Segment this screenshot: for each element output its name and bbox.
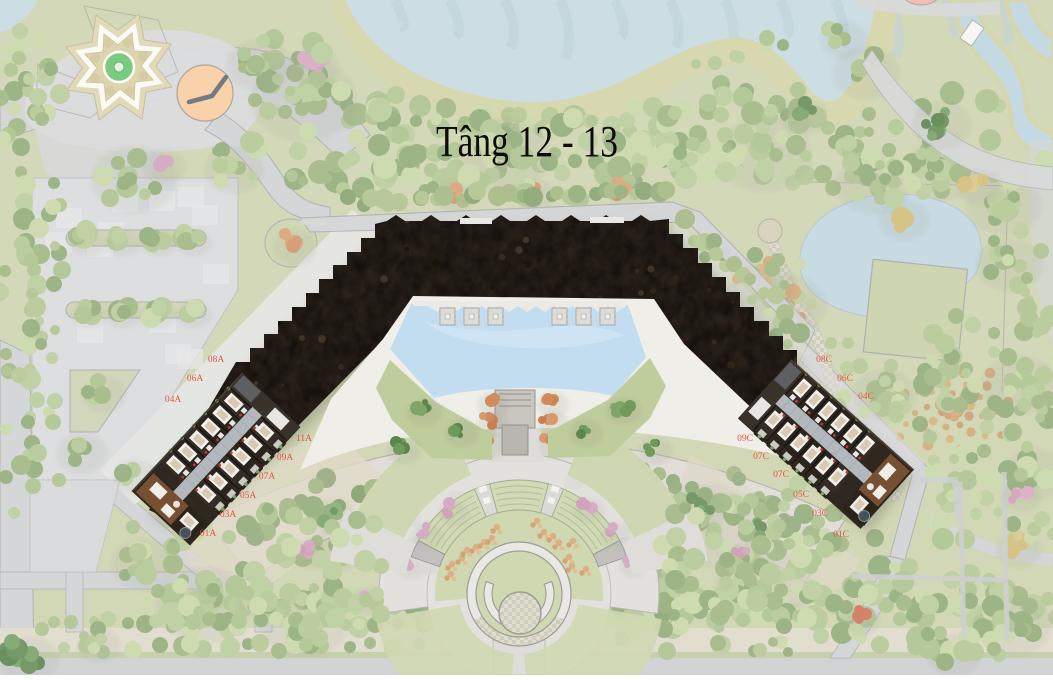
svg-text:07A: 07A — [259, 472, 276, 482]
svg-text:08A: 08A — [208, 355, 225, 365]
svg-text:01C: 01C — [833, 530, 849, 540]
svg-text:09A: 09A — [277, 453, 294, 463]
svg-text:01A: 01A — [200, 529, 217, 539]
svg-text:09C: 09C — [737, 434, 753, 444]
svg-text:11A: 11A — [296, 434, 312, 444]
svg-text:05C: 05C — [793, 490, 809, 500]
svg-text:Tâng 12 - 13: Tâng 12 - 13 — [436, 117, 618, 166]
svg-text:06A: 06A — [187, 374, 204, 384]
svg-text:04A: 04A — [165, 395, 182, 405]
svg-text:04C: 04C — [858, 392, 874, 402]
svg-text:07C: 07C — [773, 470, 789, 480]
svg-text:06C: 06C — [837, 374, 853, 384]
svg-text:07C: 07C — [753, 452, 769, 462]
svg-text:03A: 03A — [220, 510, 237, 520]
svg-text:05A: 05A — [240, 491, 257, 501]
svg-text:08C: 08C — [816, 355, 832, 365]
svg-text:03C: 03C — [812, 509, 828, 519]
